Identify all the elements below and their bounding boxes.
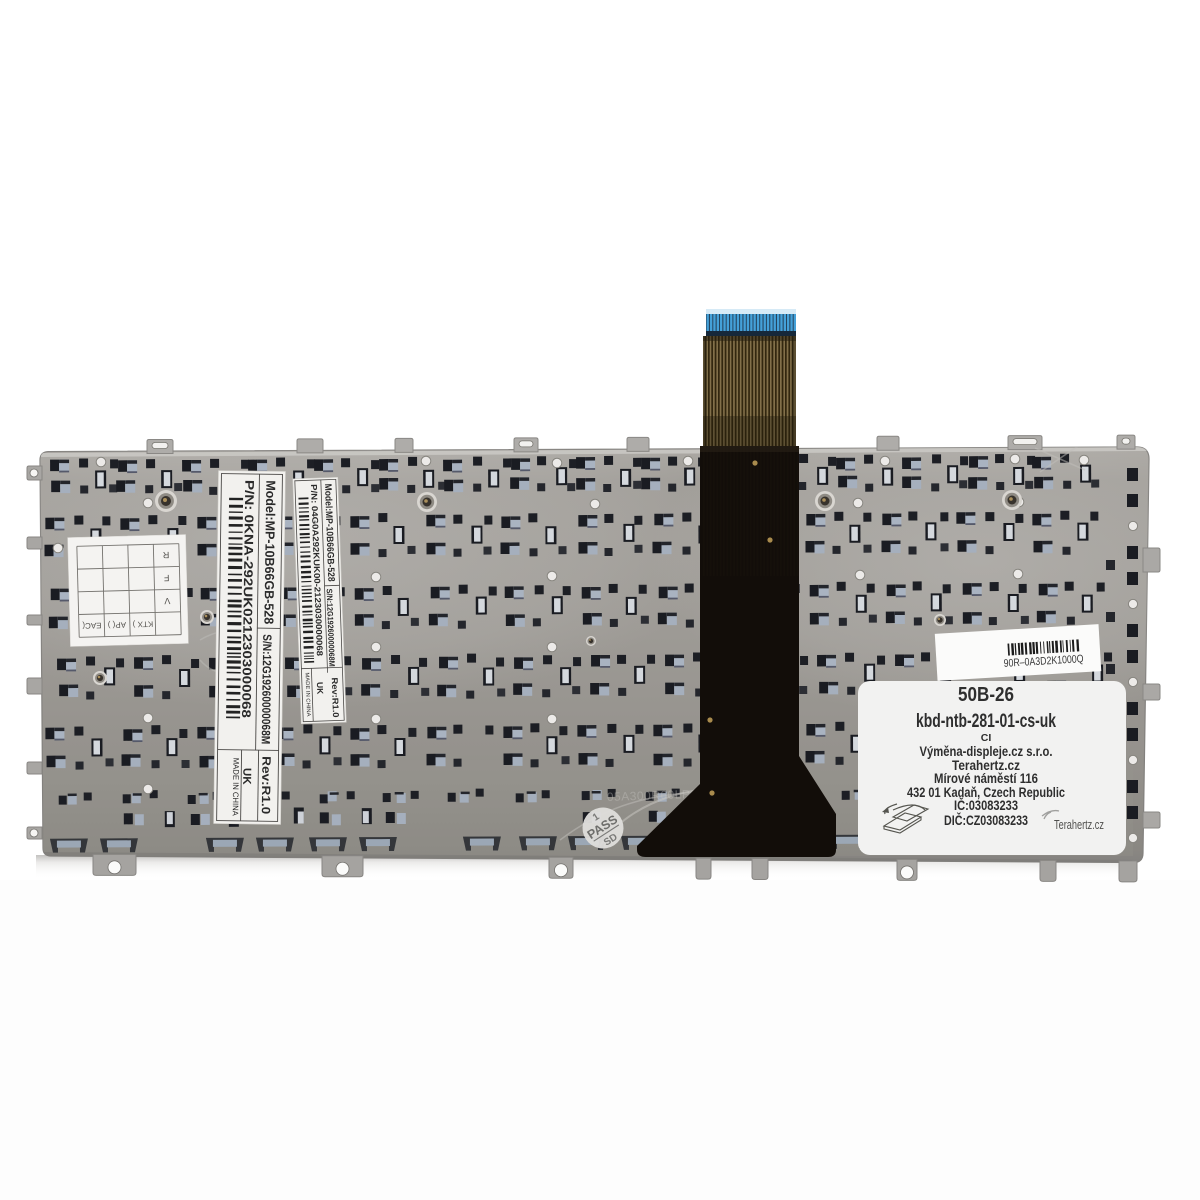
- svg-text:Rev:R1.0: Rev:R1.0: [330, 677, 341, 718]
- svg-text:Model:MP-10B66GB-528: Model:MP-10B66GB-528: [261, 480, 278, 624]
- svg-text:Výměna-displeje.cz s.r.o.: Výměna-displeje.cz s.r.o.: [920, 744, 1053, 759]
- svg-text:R: R: [162, 550, 169, 560]
- svg-text:DIČ:CZ03083233: DIČ:CZ03083233: [944, 813, 1028, 828]
- svg-text:MADE IN CHINA: MADE IN CHINA: [231, 758, 241, 817]
- svg-text:Terahertz.cz: Terahertz.cz: [1054, 818, 1104, 832]
- svg-text:S/N:12G19260000068M: S/N:12G19260000068M: [259, 634, 275, 744]
- svg-text:Mírové náměstí 116: Mírové náměstí 116: [934, 771, 1038, 786]
- svg-text:50B-26: 50B-26: [958, 684, 1014, 706]
- svg-text:V: V: [164, 596, 170, 606]
- svg-text:kbd-ntb-281-01-cs-uk: kbd-ntb-281-01-cs-uk: [916, 711, 1056, 732]
- svg-text:CI: CI: [981, 732, 992, 744]
- svg-text:UK: UK: [240, 768, 252, 785]
- svg-text:EAC(: EAC(: [82, 621, 102, 631]
- svg-text:AP( ): AP( ): [107, 620, 126, 629]
- svg-text:F: F: [163, 573, 169, 583]
- svg-text:UK: UK: [315, 682, 325, 695]
- svg-text:KTX ): KTX ): [132, 619, 153, 629]
- svg-text:Rev:R1.0: Rev:R1.0: [259, 756, 274, 815]
- svg-text:IČ:03083233: IČ:03083233: [954, 798, 1018, 813]
